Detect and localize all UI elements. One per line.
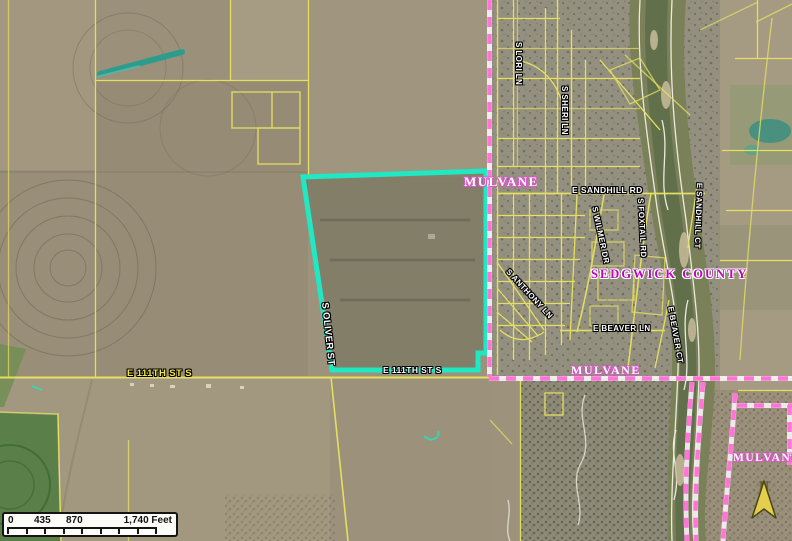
selected-parcel[interactable] [303,171,486,370]
pond [749,119,791,143]
scale-bar: 0 435 870 1,740 Feet [2,512,178,537]
scale-tick-1740: 1,740 Feet [124,515,172,526]
scale-ruler [7,527,157,536]
scale-tick-0: 0 [8,515,14,526]
map-canvas[interactable]: MULVANE MULVANE MULVANE SEDGWICK COUNTY … [0,0,792,541]
satellite-basemap [0,0,792,541]
scale-tick-435: 435 [34,515,51,526]
scale-tick-870: 870 [66,515,83,526]
selected-parcel-outline[interactable] [303,171,486,370]
